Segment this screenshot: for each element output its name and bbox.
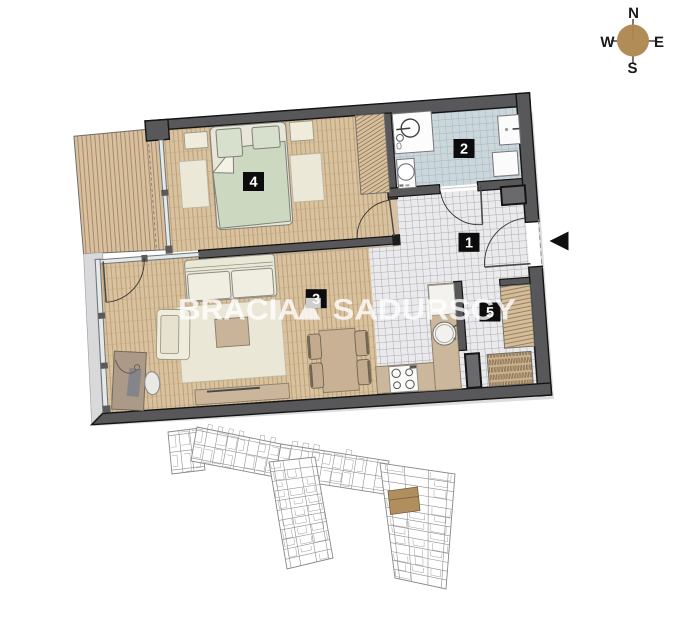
svg-text:S: S	[627, 60, 637, 77]
svg-text:4: 4	[249, 175, 257, 191]
svg-text:1: 1	[465, 235, 473, 251]
svg-text:E: E	[654, 34, 664, 51]
svg-text:BRACIA: BRACIA	[178, 293, 300, 326]
svg-text:W: W	[600, 34, 615, 51]
svg-text:2: 2	[460, 142, 468, 158]
svg-text:N: N	[628, 5, 639, 22]
svg-text:SADURSCY: SADURSCY	[332, 294, 516, 327]
